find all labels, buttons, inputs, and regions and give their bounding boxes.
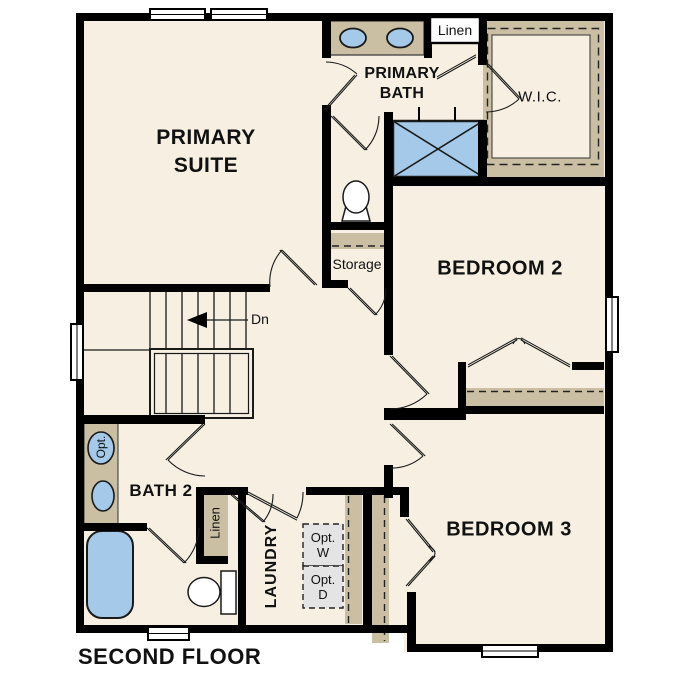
optional-washer-label: Opt. W — [311, 530, 336, 560]
window — [148, 627, 189, 640]
bedroom3-closet-shelf — [372, 495, 389, 643]
floor-plan-drawing — [0, 0, 687, 687]
bath2-sink-icon — [92, 481, 114, 511]
vanity-sink-icon — [387, 29, 413, 48]
floor-title: SECOND FLOOR — [78, 644, 261, 670]
bath2-label: BATH 2 — [129, 481, 192, 501]
optional-dryer-label: Opt. D — [311, 572, 336, 602]
primary-suite-label: PRIMARY SUITE — [156, 124, 256, 180]
primary-suite-line2: SUITE — [156, 152, 256, 180]
vanity-sink-icon — [340, 29, 366, 48]
optional-washer-line1: Opt. — [311, 530, 336, 545]
linen-upper-label: Linen — [438, 22, 472, 38]
optional-dryer-line2: D — [311, 587, 336, 602]
toilet-icon — [342, 181, 370, 221]
bath2-optional-sink-label: Opt. — [94, 436, 108, 459]
bedroom2-label: BEDROOM 2 — [437, 258, 563, 281]
primary-suite-line1: PRIMARY — [156, 124, 256, 152]
storage-label: Storage — [332, 256, 381, 272]
stairs-down-label: Dn — [251, 311, 269, 327]
window — [211, 9, 267, 20]
primary-bath-line1: PRIMARY — [364, 64, 439, 84]
bedroom2-closet-shelf — [466, 388, 604, 406]
bedroom3-label: BEDROOM 3 — [446, 519, 572, 542]
window — [71, 324, 83, 380]
optional-washer-line2: W — [311, 545, 336, 560]
primary-bath-label: PRIMARY BATH — [364, 64, 439, 104]
window — [150, 9, 205, 20]
window — [482, 645, 538, 657]
primary-bath-line2: BATH — [364, 84, 439, 104]
linen-lower-label: Linen — [208, 507, 223, 539]
laundry-shelf — [345, 495, 362, 624]
optional-dryer-line1: Opt. — [311, 572, 336, 587]
wic-label: W.I.C. — [518, 89, 562, 106]
floor-plan: PRIMARY SUITE PRIMARY BATH Linen W.I.C. … — [0, 0, 687, 687]
window — [606, 297, 618, 352]
bathtub-icon — [87, 531, 133, 618]
laundry-label: LAUNDRY — [263, 524, 281, 609]
